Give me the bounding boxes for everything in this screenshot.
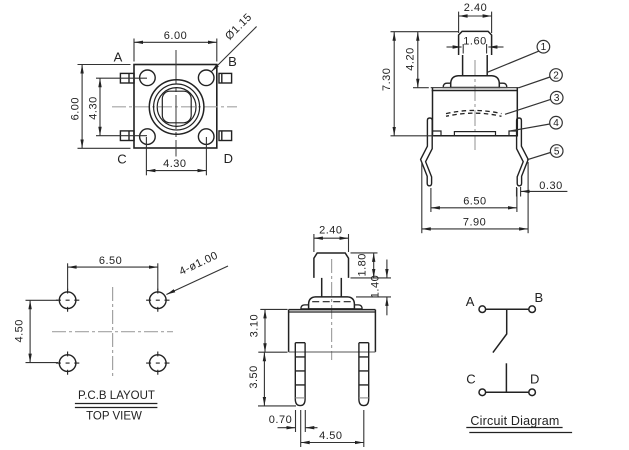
svg-text:6.00: 6.00 [70,97,82,120]
svg-text:3: 3 [554,93,560,104]
svg-text:A: A [114,50,123,65]
svg-text:7.30: 7.30 [381,68,393,91]
svg-text:1.80: 1.80 [357,253,369,276]
svg-text:1: 1 [541,42,547,53]
svg-text:D: D [530,371,539,386]
svg-text:A: A [466,294,475,309]
svg-text:0.70: 0.70 [269,414,292,426]
svg-text:6.50: 6.50 [463,195,486,207]
svg-text:B: B [228,54,237,69]
svg-text:6.00: 6.00 [164,30,187,42]
svg-text:1.60: 1.60 [463,36,486,48]
svg-text:4.20: 4.20 [405,47,417,70]
svg-text:4-ø1.00: 4-ø1.00 [177,250,220,278]
svg-text:4.30: 4.30 [87,96,99,119]
svg-text:0.30: 0.30 [539,180,562,192]
svg-text:4.50: 4.50 [14,319,26,342]
svg-text:6.50: 6.50 [99,255,122,267]
svg-text:C: C [117,152,126,167]
svg-text:4: 4 [553,118,559,129]
svg-text:2.40: 2.40 [464,2,487,14]
svg-text:1.40: 1.40 [370,275,382,298]
svg-text:3.10: 3.10 [249,314,261,337]
svg-text:B: B [534,290,543,305]
svg-text:4.50: 4.50 [319,430,342,442]
svg-text:3.50: 3.50 [248,365,260,388]
svg-text:4.30: 4.30 [163,158,186,170]
svg-text:Ø1.15: Ø1.15 [223,11,254,42]
svg-text:2.40: 2.40 [319,225,342,237]
svg-text:TOP VIEW: TOP VIEW [86,411,142,423]
svg-text:P.C.B LAYOUT: P.C.B LAYOUT [78,390,155,402]
svg-text:Circuit Diagram: Circuit Diagram [470,414,559,428]
svg-text:5: 5 [554,147,560,158]
svg-text:2: 2 [553,71,559,82]
svg-text:C: C [466,371,475,386]
svg-text:D: D [224,151,233,166]
svg-text:7.90: 7.90 [463,216,486,228]
